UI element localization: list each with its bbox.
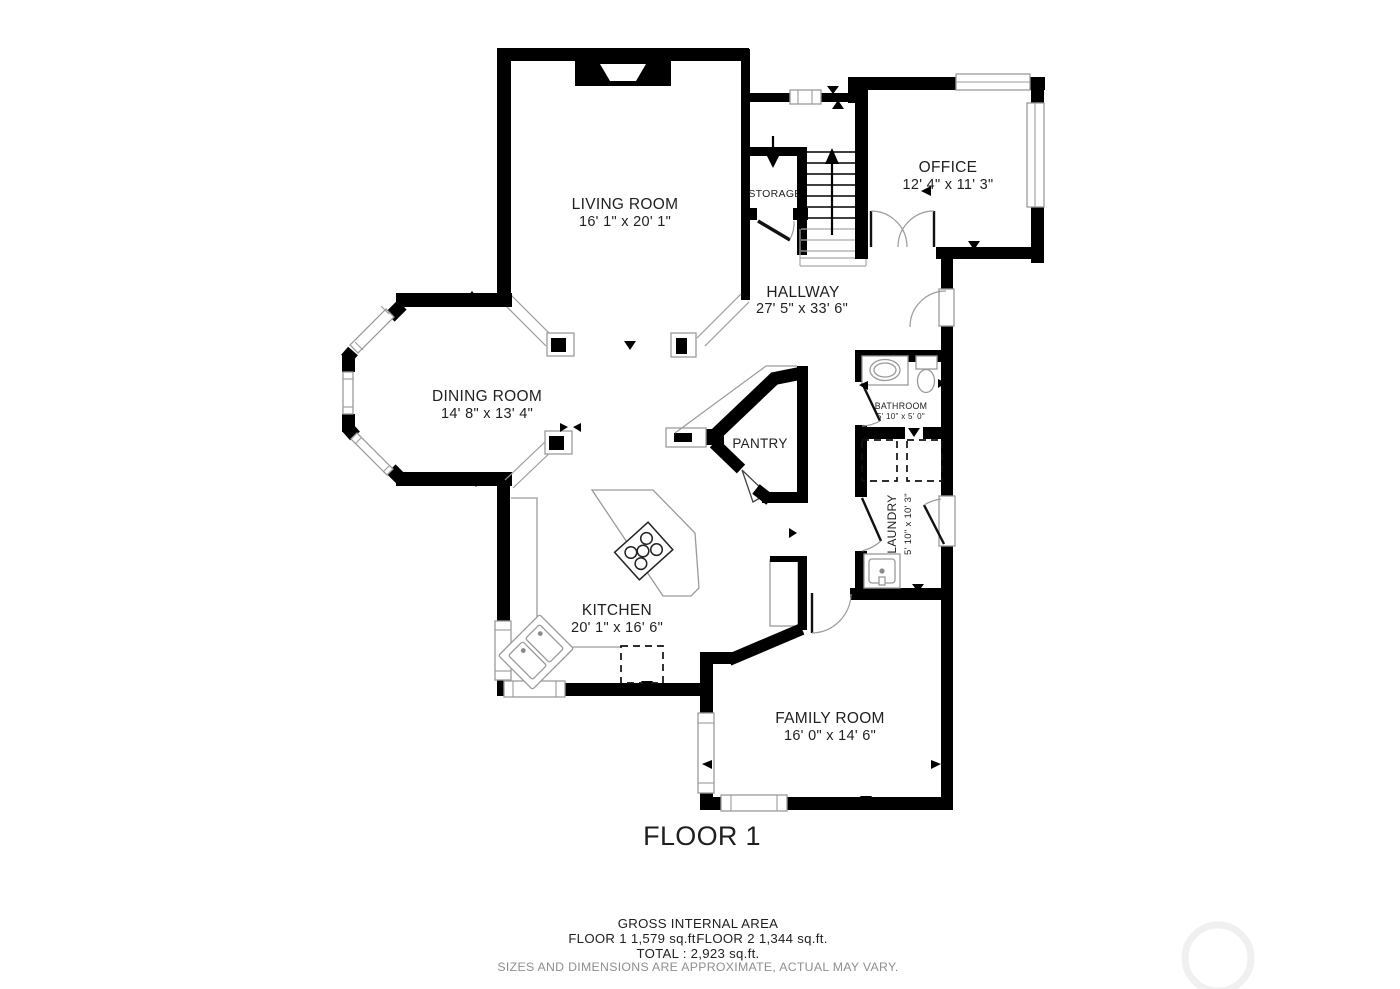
family-room-label: FAMILY ROOM xyxy=(775,710,885,727)
room-bathroom: BATHROOM 5' 10" x 5' 0" xyxy=(855,350,953,498)
room-pantry: PANTRY xyxy=(666,366,808,503)
family-left-window xyxy=(698,713,714,793)
floor-title: FLOOR 1 xyxy=(643,821,761,851)
bay-window xyxy=(350,309,394,353)
family-room-dims: 16' 0" x 14' 6" xyxy=(784,728,876,744)
laundry-door-left xyxy=(862,498,881,541)
laundry-dims: 5' 10" x 10' 3" xyxy=(903,493,914,555)
living-room-label: LIVING ROOM xyxy=(572,196,679,213)
pantry-label: PANTRY xyxy=(732,436,787,451)
utility-sink xyxy=(864,554,900,588)
footer: GROSS INTERNAL AREA FLOOR 1 1,579 sq.ft.… xyxy=(497,916,898,974)
dining-room-label: DINING ROOM xyxy=(432,388,542,405)
entry-window xyxy=(790,90,821,104)
room-hallway: HALLWAY 27' 5" x 33' 6" xyxy=(756,259,954,352)
footer-disclaimer: SIZES AND DIMENSIONS ARE APPROXIMATE, AC… xyxy=(497,960,898,974)
washer xyxy=(862,440,897,481)
storage-label: STORAGE xyxy=(748,188,801,200)
hallway-label: HALLWAY xyxy=(766,284,839,301)
bathroom-dims: 5' 10" x 5' 0" xyxy=(877,412,925,421)
dryer xyxy=(907,440,942,481)
office-dims: 12' 4" x 11' 3" xyxy=(902,177,993,193)
fireplace xyxy=(575,58,671,86)
office-french-doors xyxy=(871,211,934,247)
kitchen-label: KITCHEN xyxy=(582,602,652,619)
dishwasher xyxy=(621,646,663,683)
hallway-door-panel xyxy=(939,289,954,326)
toilet xyxy=(916,356,937,393)
office-label: OFFICE xyxy=(919,159,978,176)
living-room-dims: 16' 1" x 20' 1" xyxy=(579,214,671,230)
footer-total: TOTAL : 2,923 sq.ft. xyxy=(636,946,759,961)
floor-plan-canvas: LIVING ROOM 16' 1" x 20' 1" DINING ROOM … xyxy=(0,0,1400,989)
dining-room-dims: 14' 8" x 13' 4" xyxy=(441,406,533,422)
fridge-nook xyxy=(700,556,807,664)
room-family: FAMILY ROOM 16' 0" x 14' 6" xyxy=(698,593,953,811)
bathroom-label: BATHROOM xyxy=(875,401,928,411)
hallway-dims: 27' 5" x 33' 6" xyxy=(756,301,848,317)
kitchen-dims: 20' 1" x 16' 6" xyxy=(571,620,663,636)
storage-door xyxy=(758,221,790,240)
room-living: LIVING ROOM 16' 1" x 20' 1" xyxy=(497,48,750,357)
room-dining: DINING ROOM 14' 8" x 13' 4" xyxy=(342,293,542,486)
room-kitchen: KITCHEN 20' 1" x 16' 6" xyxy=(495,431,713,697)
watermark-circle xyxy=(1185,925,1251,989)
laundry-label: LAUNDRY xyxy=(885,494,899,553)
floor-plan-page: LIVING ROOM 16' 1" x 20' 1" DINING ROOM … xyxy=(0,0,1400,989)
kitchen-counter xyxy=(511,498,537,617)
footer-heading: GROSS INTERNAL AREA xyxy=(618,916,779,931)
bathroom-vanity-sink xyxy=(862,356,908,385)
refrigerator xyxy=(770,560,798,626)
room-office: OFFICE 12' 4" x 11' 3" xyxy=(848,74,1045,263)
footer-floor2-area: FLOOR 2 1,344 sq.ft. xyxy=(696,931,827,946)
bay-window xyxy=(343,372,353,414)
footer-floor1-area: FLOOR 1 1,579 sq.ft. xyxy=(568,931,699,946)
